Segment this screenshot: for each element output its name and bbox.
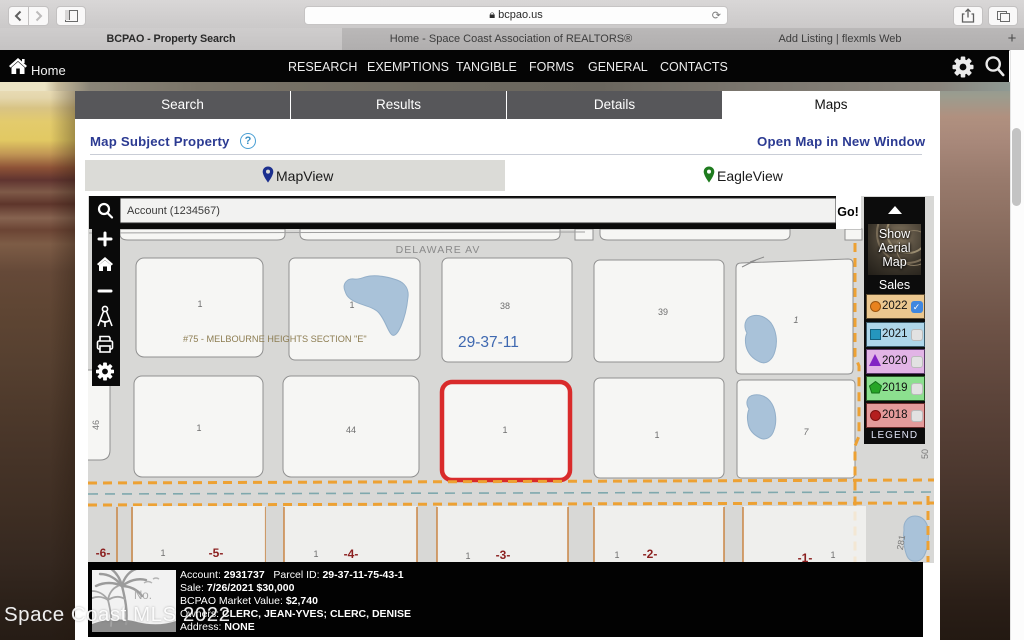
svg-text:-2-: -2- (643, 547, 658, 561)
svg-text:-1-: -1- (798, 551, 813, 562)
svg-text:1: 1 (197, 299, 202, 309)
svg-text:DELAWARE AV: DELAWARE AV (396, 244, 481, 256)
svg-text:1: 1 (313, 549, 318, 559)
svg-text:1: 1 (614, 550, 619, 560)
svg-text:46: 46 (91, 420, 101, 430)
svg-text:1: 1 (830, 550, 835, 560)
svg-text:1: 1 (465, 551, 470, 561)
svg-text:#75 - MELBOURNE HEIGHTS SECTIO: #75 - MELBOURNE HEIGHTS SECTION "E" (183, 334, 367, 344)
svg-text:39: 39 (658, 307, 668, 317)
svg-text:38: 38 (500, 301, 510, 311)
svg-text:1: 1 (160, 548, 165, 558)
svg-text:-3-: -3- (496, 548, 511, 562)
svg-text:-5-: -5- (209, 546, 224, 560)
svg-text:29-37-11: 29-37-11 (458, 334, 519, 351)
svg-text:1: 1 (654, 430, 659, 440)
svg-text:-6-: -6- (96, 546, 111, 560)
svg-text:Go!: Go! (837, 205, 859, 219)
svg-text:1: 1 (793, 315, 798, 325)
svg-text:1: 1 (196, 423, 201, 433)
svg-text:1: 1 (502, 425, 507, 435)
svg-text:44: 44 (346, 425, 356, 435)
svg-text:-4-: -4- (344, 547, 359, 561)
svg-text:50: 50 (920, 449, 930, 459)
svg-text:No.: No. (134, 590, 152, 602)
svg-text:Account (1234567): Account (1234567) (127, 205, 220, 217)
